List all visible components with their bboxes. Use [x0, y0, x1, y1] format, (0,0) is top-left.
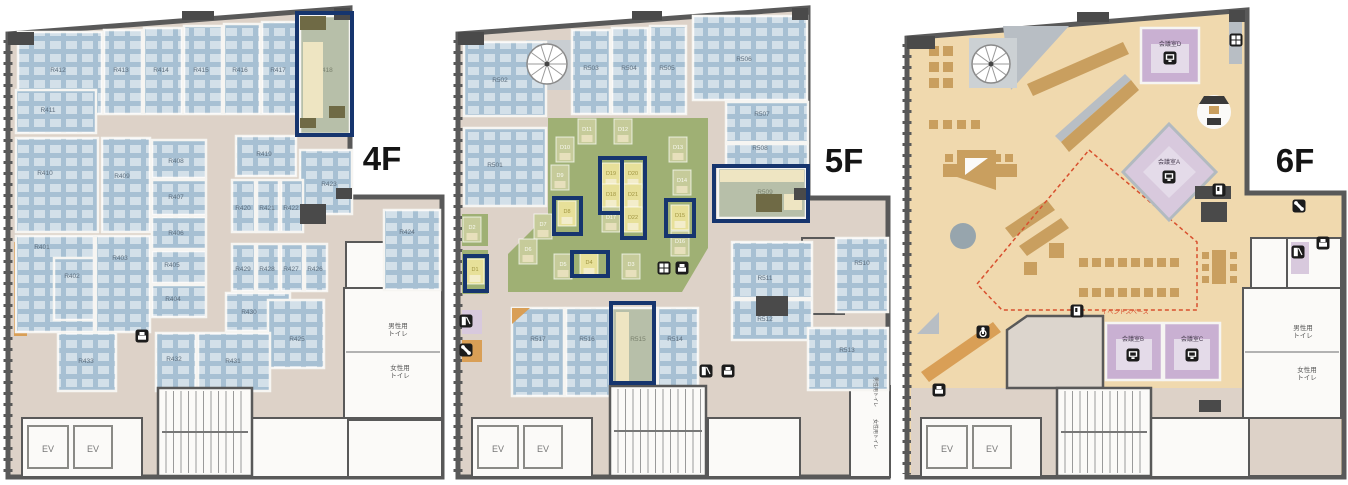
- room-EV: EV: [973, 426, 1011, 468]
- map-shape: [943, 78, 953, 88]
- room-label: R409: [114, 173, 130, 180]
- booth-D13[interactable]: D13: [669, 137, 687, 162]
- room-label: R404: [165, 296, 181, 303]
- map-shape: [1144, 258, 1153, 267]
- phone-icon: [460, 344, 473, 357]
- booth-label: D19: [606, 171, 616, 177]
- room-EV: EV: [524, 426, 562, 468]
- map-shape: [1243, 288, 1341, 418]
- floor-plan-4F: R412R413R414R415R416R417R418R411R410R409…: [0, 0, 449, 485]
- room-R414[interactable]: R414: [144, 28, 182, 114]
- map-shape: [182, 11, 214, 20]
- booth-label: D21: [628, 192, 638, 198]
- room-label: R415: [193, 67, 209, 74]
- floor-label-4F: 4F: [363, 140, 402, 177]
- map-shape: [252, 418, 350, 477]
- room-label: 会議室D: [1159, 40, 1182, 48]
- map-shape: [907, 36, 935, 49]
- booth-D12[interactable]: D12: [614, 119, 632, 144]
- map-shape: [1170, 258, 1179, 267]
- room-label: R407: [168, 194, 184, 201]
- room-EV: EV: [74, 426, 112, 468]
- room-label: R413: [113, 67, 129, 74]
- wheel-icon: [977, 326, 990, 339]
- booth-D6[interactable]: D6: [519, 239, 537, 264]
- booth-D17[interactable]: D17: [602, 207, 620, 232]
- room-R431[interactable]: R431: [198, 333, 270, 391]
- room-label: R405: [164, 262, 180, 269]
- map-shape: [632, 11, 662, 20]
- room-EV: EV: [28, 426, 68, 468]
- map-text: 女性用トイレ: [390, 363, 410, 379]
- map-text: 女性用トイレ: [872, 419, 879, 449]
- map-shape: [1157, 288, 1166, 297]
- booth-D22[interactable]: D22: [624, 207, 642, 232]
- booth-label: D1: [471, 267, 478, 273]
- room-label: R408: [168, 158, 184, 165]
- map-shape: [1079, 258, 1088, 267]
- map-text: 会議室A: [1158, 158, 1180, 166]
- room-R405[interactable]: R405: [152, 251, 206, 283]
- staircase: [1057, 388, 1151, 476]
- printer-icon: [1317, 237, 1330, 250]
- map-shape: [1118, 258, 1127, 267]
- room-label: R406: [168, 230, 184, 237]
- room-label: R506: [736, 56, 752, 63]
- room-label: 会議室B: [1122, 335, 1144, 343]
- map-shape: [1092, 288, 1101, 297]
- room-R433[interactable]: R433: [58, 333, 116, 391]
- room-R415[interactable]: R415: [184, 26, 222, 114]
- map-shape: [971, 120, 980, 129]
- monitor-icon: [1163, 171, 1176, 184]
- map-shape: [1105, 258, 1114, 267]
- room-label: R425: [289, 336, 305, 343]
- spiral-staircase: [527, 44, 567, 84]
- room-R409[interactable]: R409: [102, 138, 150, 232]
- room-R426[interactable]: R426: [305, 244, 327, 291]
- room-label: R410: [37, 170, 53, 177]
- room-R406[interactable]: R406: [152, 217, 206, 249]
- map-text: 男性用トイレ: [872, 377, 879, 407]
- map-shape: [945, 154, 953, 162]
- map-shape: [957, 120, 966, 129]
- room-label: R424: [399, 229, 415, 236]
- room-R410[interactable]: R410: [16, 138, 98, 232]
- map-text: 男性用トイレ: [388, 321, 408, 337]
- booth-label: D7: [539, 222, 546, 228]
- map-shape: [344, 288, 442, 418]
- map-shape: [708, 418, 800, 477]
- booth-D4[interactable]: D4: [580, 252, 598, 277]
- room-R511[interactable]: R511: [732, 242, 812, 298]
- booth-label: D9: [556, 173, 563, 179]
- printer-icon: [933, 384, 946, 397]
- map-shape: [1212, 250, 1226, 284]
- map-shape: [1199, 96, 1229, 104]
- room-R422[interactable]: R422: [281, 180, 303, 232]
- map-shape: [1230, 264, 1237, 271]
- room-R428[interactable]: R428: [257, 244, 279, 291]
- booth-label: D10: [560, 145, 570, 151]
- booth-label: D12: [618, 127, 628, 133]
- floor-panel-6f: 会議室D会議室B会議室CEVEV会議室Aイベントスペース男性用トイレ女性用トイレ…: [899, 0, 1348, 485]
- room-R424[interactable]: R424: [384, 210, 440, 290]
- map-shape: [943, 46, 953, 56]
- floor-panel-4f: R412R413R414R415R416R417R418R411R410R409…: [0, 0, 449, 485]
- room-label: R403: [112, 255, 128, 262]
- booth-label: D4: [585, 260, 592, 266]
- map-shape: [1007, 316, 1103, 388]
- booth-D21[interactable]: D21: [624, 184, 642, 209]
- booth-label: D14: [677, 178, 687, 184]
- map-shape: [300, 118, 316, 128]
- room-label: R510: [854, 260, 870, 267]
- map-shape: [1144, 288, 1153, 297]
- booth-label: D17: [606, 215, 616, 221]
- vend-icon: [1071, 305, 1084, 318]
- room-R507[interactable]: R507: [726, 102, 808, 142]
- room-label: 会議室C: [1181, 335, 1204, 343]
- room-R429[interactable]: R429: [232, 244, 255, 291]
- room-label: R503: [583, 65, 599, 72]
- room-label: R429: [235, 266, 251, 273]
- room-label: R512: [757, 316, 773, 323]
- map-shape: [1131, 288, 1140, 297]
- map-shape: [1005, 154, 1013, 162]
- staircase: [158, 388, 252, 476]
- room-label: R433: [78, 358, 94, 365]
- map-shape: [8, 32, 34, 45]
- room-label: EV: [537, 444, 549, 454]
- booth-D9[interactable]: D9: [551, 165, 569, 190]
- map-shape: [303, 42, 323, 118]
- room-label: EV: [986, 444, 998, 454]
- map-shape: [1157, 258, 1166, 267]
- door-icon: [460, 315, 473, 328]
- map-shape: [1079, 288, 1088, 297]
- room-label: R432: [166, 356, 182, 363]
- map-shape: [1049, 243, 1064, 258]
- booth-D7[interactable]: D7: [534, 214, 552, 239]
- monitor-icon: [1186, 349, 1199, 362]
- map-shape: [792, 8, 808, 20]
- room-label: R428: [259, 266, 275, 273]
- room-label: R507: [754, 111, 770, 118]
- monitor-icon: [1164, 52, 1177, 65]
- room-label: R412: [50, 67, 66, 74]
- map-shape: [300, 16, 326, 30]
- room-label: R421: [259, 205, 275, 212]
- room-R420[interactable]: R420: [232, 180, 255, 232]
- map-shape: [950, 223, 976, 249]
- map-shape: [1201, 202, 1227, 222]
- room-label: EV: [941, 444, 953, 454]
- room-R419[interactable]: R419: [236, 136, 296, 176]
- map-shape: [1202, 252, 1209, 259]
- room-label: R422: [283, 205, 299, 212]
- room-label: R426: [307, 266, 323, 273]
- room-label: R514: [667, 336, 683, 343]
- map-shape: [1230, 252, 1237, 259]
- booth-D14[interactable]: D14: [673, 170, 691, 195]
- map-shape: [1170, 288, 1179, 297]
- room-label: R416: [232, 67, 248, 74]
- room-label: R420: [235, 205, 251, 212]
- map-shape: [1118, 288, 1127, 297]
- room-R407[interactable]: R407: [152, 180, 206, 215]
- room-label: R501: [487, 162, 503, 169]
- room-R516[interactable]: R516: [566, 308, 610, 396]
- floor-label-6F: 6F: [1276, 142, 1315, 179]
- printer-icon: [722, 365, 735, 378]
- door-icon: [700, 365, 713, 378]
- map-shape: [756, 296, 788, 316]
- room-label: EV: [42, 444, 54, 454]
- room-R504[interactable]: R504: [612, 28, 648, 114]
- map-shape: [329, 106, 345, 118]
- room-R514[interactable]: R514: [658, 308, 698, 396]
- printer-icon: [136, 330, 149, 343]
- booth-D11[interactable]: D11: [578, 119, 596, 144]
- room-EV: EV: [927, 426, 967, 468]
- map-shape: [1229, 10, 1245, 22]
- floor-plan-6F: 会議室D会議室B会議室CEVEV会議室Aイベントスペース男性用トイレ女性用トイレ…: [899, 0, 1348, 485]
- booth-D1[interactable]: D1: [466, 259, 484, 284]
- map-shape: [1207, 118, 1221, 125]
- room-R402[interactable]: R402: [54, 258, 94, 320]
- room-label: R513: [839, 347, 855, 354]
- map-shape: [348, 420, 442, 477]
- map-shape: [929, 120, 938, 129]
- room-label: R504: [621, 65, 637, 72]
- map-shape: [1209, 106, 1219, 114]
- room-R425[interactable]: R425: [268, 300, 324, 368]
- room-label: R401: [34, 244, 50, 251]
- room-R501[interactable]: R501: [464, 128, 546, 206]
- room-label: R402: [64, 273, 80, 280]
- room-label: R411: [40, 107, 55, 114]
- booth-label: D20: [628, 171, 638, 177]
- room-R503[interactable]: R503: [572, 30, 610, 114]
- floor-maps-stage: R412R413R414R415R416R417R418R411R410R409…: [0, 0, 1348, 485]
- map-shape: [943, 62, 953, 72]
- room-R411[interactable]: R411: [16, 90, 96, 133]
- booth-D8[interactable]: D8: [558, 201, 576, 226]
- booth-D2[interactable]: D2: [463, 217, 481, 242]
- booth-label: D11: [582, 127, 592, 133]
- booth-D5[interactable]: D5: [554, 254, 572, 279]
- spiral-staircase: [972, 45, 1010, 83]
- room-R403[interactable]: R403: [96, 236, 150, 332]
- room-R432[interactable]: R432: [156, 333, 196, 391]
- map-shape: [1202, 276, 1209, 283]
- room-R427[interactable]: R427: [281, 244, 303, 291]
- printer-icon: [676, 262, 689, 275]
- room-R510[interactable]: R510: [836, 238, 888, 312]
- phone-icon: [1293, 200, 1306, 213]
- room-label: R414: [153, 67, 169, 74]
- room-label: R505: [659, 65, 675, 72]
- booth-label: D15: [675, 213, 685, 219]
- map-shape: [720, 170, 804, 182]
- booth-label: D3: [627, 262, 634, 268]
- room-label: R508: [752, 145, 768, 152]
- map-shape: [1230, 276, 1237, 283]
- map-shape: [1105, 288, 1114, 297]
- room-R404[interactable]: R404: [152, 285, 206, 317]
- room-label: R423: [321, 181, 337, 188]
- door-icon: [1292, 246, 1305, 259]
- room-R413[interactable]: R413: [104, 30, 142, 114]
- map-text: イベントスペース: [1101, 309, 1148, 316]
- room-label: R431: [225, 358, 241, 365]
- map-shape: [943, 120, 952, 129]
- room-label: R502: [492, 77, 508, 84]
- room-R416[interactable]: R416: [224, 24, 260, 114]
- room-R421[interactable]: R421: [257, 180, 279, 232]
- map-shape: [1077, 12, 1109, 22]
- room-label: R427: [283, 266, 299, 273]
- booth-label: D6: [524, 247, 531, 253]
- booth-D18[interactable]: D18: [602, 184, 620, 209]
- grid-icon: [658, 262, 671, 275]
- room-label: EV: [87, 444, 99, 454]
- booth-label: D13: [673, 145, 683, 151]
- floor-plan-5F: R502R503R504R505R506R507R508R501R509R511…: [450, 0, 899, 485]
- room-EV: EV: [478, 426, 518, 468]
- room-label: R517: [530, 336, 546, 343]
- booth-label: D2: [468, 225, 475, 231]
- room-label: R516: [579, 336, 595, 343]
- map-shape: [1092, 258, 1101, 267]
- map-text: 女性用トイレ: [1297, 365, 1317, 381]
- room-R505[interactable]: R505: [650, 26, 686, 114]
- room-label: R515: [630, 336, 646, 343]
- map-shape: [1131, 258, 1140, 267]
- room-label: R430: [241, 309, 257, 316]
- map-shape: [300, 204, 326, 224]
- booth-label: D18: [606, 192, 616, 198]
- booth-label: D16: [675, 239, 685, 245]
- booth-label: D22: [628, 215, 638, 221]
- booth-D10[interactable]: D10: [556, 137, 574, 162]
- monitor-icon: [1127, 349, 1140, 362]
- map-shape: [1024, 262, 1037, 275]
- vend-icon: [1213, 184, 1226, 197]
- booth-D15[interactable]: D15: [671, 205, 689, 230]
- room-R408[interactable]: R408: [152, 140, 206, 178]
- map-shape: [616, 312, 629, 384]
- map-shape: [458, 32, 484, 45]
- map-shape: [1151, 418, 1249, 477]
- booth-label: D8: [563, 209, 570, 215]
- booth-label: D5: [559, 262, 566, 268]
- room-label: R417: [270, 67, 286, 74]
- room-label: R511: [757, 275, 772, 282]
- booth-D3[interactable]: D3: [622, 254, 640, 279]
- staircase: [610, 386, 706, 476]
- map-shape: [929, 62, 939, 72]
- room-R417[interactable]: R417: [262, 22, 298, 114]
- map-shape: [794, 188, 808, 200]
- map-shape: [1202, 264, 1209, 271]
- grid-icon: [1230, 34, 1243, 47]
- map-shape: [336, 188, 352, 199]
- room-label: EV: [492, 444, 504, 454]
- room-R506[interactable]: R506: [693, 16, 807, 100]
- map-text: 男性用トイレ: [1293, 323, 1313, 339]
- room-label: R419: [256, 151, 272, 158]
- map-shape: [756, 194, 782, 212]
- floor-label-5F: 5F: [825, 142, 864, 179]
- map-shape: [929, 78, 939, 88]
- floor-panel-5f: R502R503R504R505R506R507R508R501R509R511…: [450, 0, 899, 485]
- map-shape: [1199, 400, 1221, 412]
- room-R517[interactable]: R517: [512, 308, 564, 396]
- map-shape: [850, 386, 890, 477]
